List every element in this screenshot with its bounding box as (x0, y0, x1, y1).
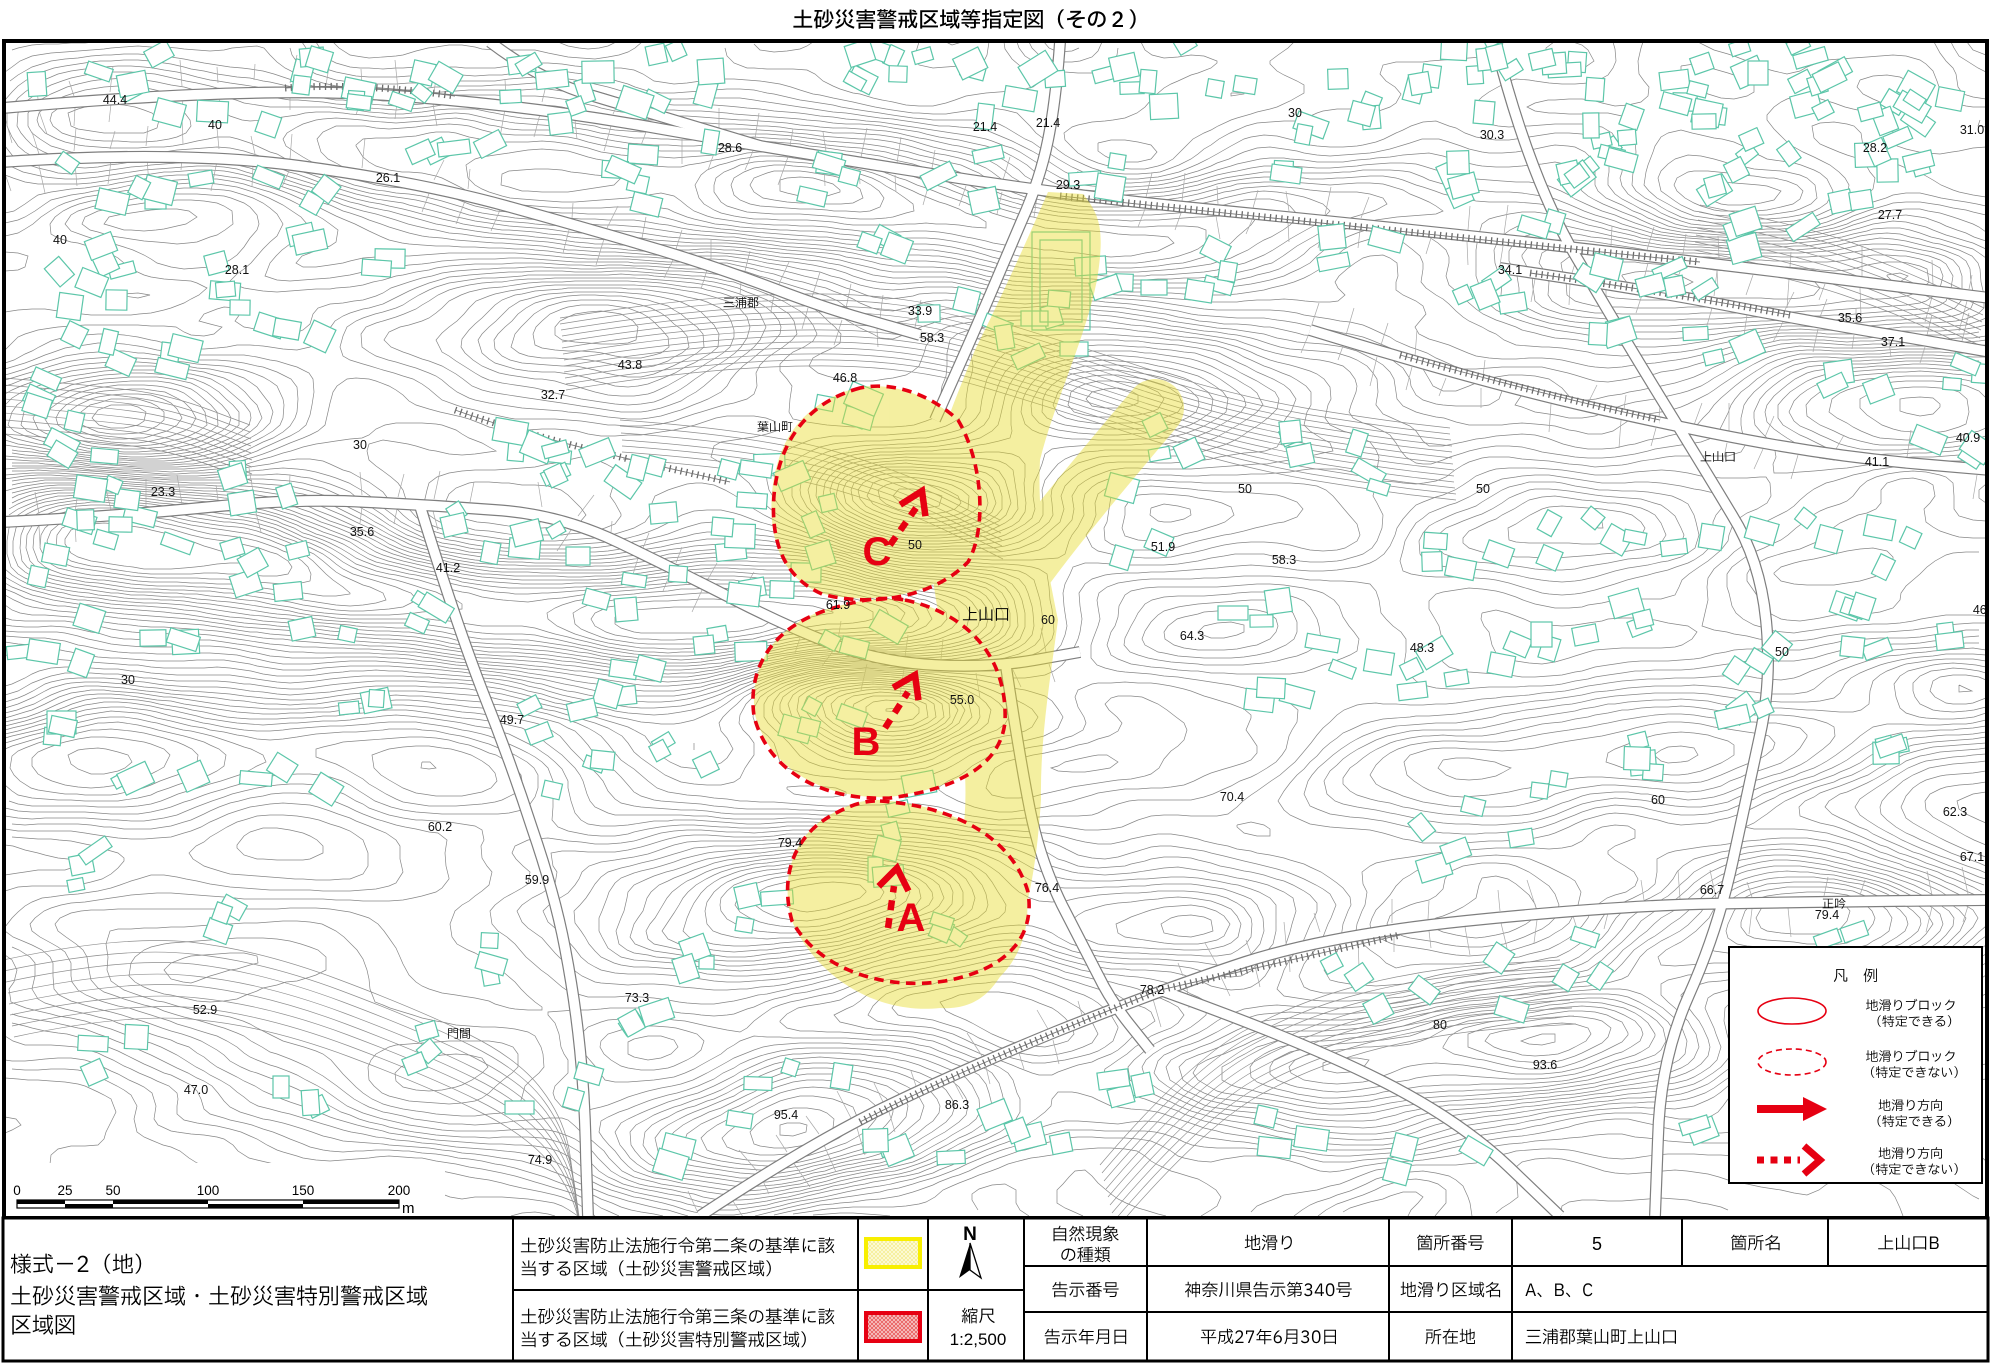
svg-text:m: m (402, 1200, 415, 1217)
svg-text:58.3: 58.3 (920, 331, 944, 345)
svg-text:60: 60 (1041, 613, 1055, 627)
svg-text:79.4: 79.4 (1815, 908, 1839, 922)
svg-text:30: 30 (353, 438, 367, 452)
svg-text:50: 50 (908, 538, 922, 552)
svg-text:46.8: 46.8 (833, 371, 857, 385)
svg-text:50: 50 (1476, 482, 1490, 496)
svg-text:21.4: 21.4 (973, 120, 997, 134)
svg-text:37.1: 37.1 (1881, 335, 1905, 349)
svg-text:41.2: 41.2 (436, 561, 460, 575)
svg-text:40: 40 (208, 118, 222, 132)
svg-text:28.6: 28.6 (718, 141, 742, 155)
svg-text:67.1: 67.1 (1960, 850, 1984, 864)
svg-text:21.4: 21.4 (1036, 116, 1060, 130)
svg-text:35.6: 35.6 (1838, 311, 1862, 325)
svg-text:50: 50 (105, 1183, 120, 1198)
svg-text:64.3: 64.3 (1180, 629, 1204, 643)
svg-text:93.6: 93.6 (1533, 1058, 1557, 1072)
svg-text:5: 5 (1592, 1234, 1602, 1254)
svg-text:41.1: 41.1 (1865, 455, 1889, 469)
svg-text:1:2,500: 1:2,500 (950, 1330, 1007, 1349)
svg-text:47.0: 47.0 (184, 1083, 208, 1097)
svg-text:49.7: 49.7 (500, 713, 524, 727)
svg-text:52.9: 52.9 (193, 1003, 217, 1017)
svg-text:44.4: 44.4 (103, 93, 127, 107)
svg-text:33.9: 33.9 (908, 304, 932, 318)
svg-text:40: 40 (53, 233, 67, 247)
svg-text:C: C (863, 530, 892, 574)
svg-text:0: 0 (13, 1183, 21, 1198)
svg-text:A: A (897, 896, 926, 940)
svg-text:28.1: 28.1 (225, 263, 249, 277)
svg-text:N: N (963, 1224, 977, 1245)
svg-text:51.9: 51.9 (1151, 540, 1175, 554)
svg-text:59.9: 59.9 (525, 873, 549, 887)
svg-text:79.4: 79.4 (778, 836, 802, 850)
svg-text:58.3: 58.3 (1272, 553, 1296, 567)
svg-text:32.7: 32.7 (541, 388, 565, 402)
svg-text:60.2: 60.2 (428, 820, 452, 834)
svg-text:50: 50 (1775, 645, 1789, 659)
svg-text:35.6: 35.6 (350, 525, 374, 539)
svg-text:80: 80 (1433, 1018, 1447, 1032)
svg-text:34.1: 34.1 (1498, 263, 1522, 277)
svg-text:27.7: 27.7 (1878, 208, 1902, 222)
svg-text:30: 30 (1288, 106, 1302, 120)
svg-text:60: 60 (1651, 793, 1665, 807)
svg-text:78.2: 78.2 (1140, 983, 1164, 997)
svg-text:200: 200 (388, 1183, 411, 1198)
svg-text:43.8: 43.8 (618, 358, 642, 372)
svg-text:100: 100 (197, 1183, 220, 1198)
svg-text:55.0: 55.0 (950, 693, 974, 707)
svg-text:86.3: 86.3 (945, 1098, 969, 1112)
svg-text:29.3: 29.3 (1056, 178, 1080, 192)
svg-text:50: 50 (1238, 482, 1252, 496)
svg-text:48.3: 48.3 (1410, 641, 1434, 655)
svg-text:61.9: 61.9 (826, 598, 850, 612)
svg-text:76.4: 76.4 (1035, 881, 1059, 895)
svg-text:30: 30 (121, 673, 135, 687)
svg-text:26.1: 26.1 (376, 171, 400, 185)
svg-text:74.9: 74.9 (528, 1153, 552, 1167)
svg-text:28.2: 28.2 (1863, 141, 1887, 155)
svg-text:95.4: 95.4 (774, 1108, 798, 1122)
svg-text:70.4: 70.4 (1220, 790, 1244, 804)
svg-text:40.9: 40.9 (1956, 431, 1980, 445)
svg-text:B: B (852, 720, 881, 764)
svg-text:73.3: 73.3 (625, 991, 649, 1005)
svg-text:25: 25 (57, 1183, 72, 1198)
svg-text:30.3: 30.3 (1480, 128, 1504, 142)
svg-text:66.7: 66.7 (1700, 883, 1724, 897)
svg-text:62.3: 62.3 (1943, 805, 1967, 819)
svg-text:31.0: 31.0 (1960, 123, 1984, 137)
svg-text:150: 150 (292, 1183, 315, 1198)
svg-text:23.3: 23.3 (151, 485, 175, 499)
